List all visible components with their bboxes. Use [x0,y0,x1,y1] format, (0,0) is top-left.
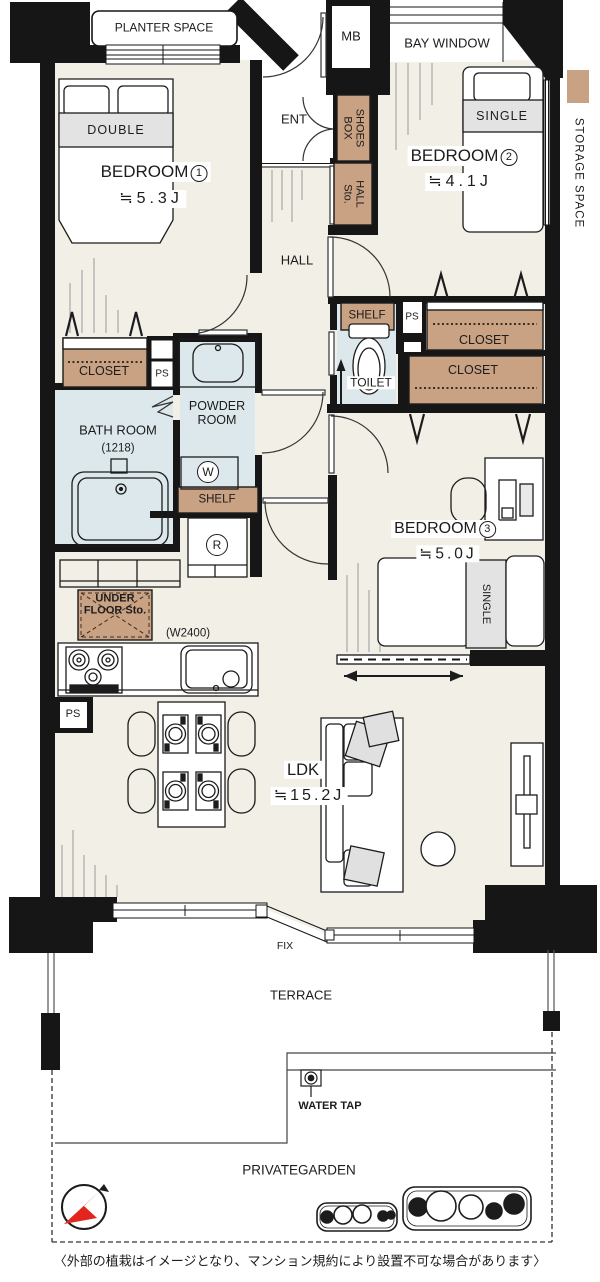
powder-door-leaf [262,390,325,395]
bathroom-name: BATH ROOM [79,424,157,439]
washer-symbol: W [197,461,219,483]
toilet-label: TOILET [347,376,395,389]
side-table [421,832,455,866]
bedroom3-closet-label: CLOSET [448,363,498,377]
bedroom2-closet-label: CLOSET [459,333,509,347]
shoes-box-label: SHOESBOX [341,109,366,148]
bedroom3-size: ≒5.0J [416,545,479,562]
meter-box-label: MB [341,30,361,45]
planter-space-label: PLANTER SPACE [115,21,213,34]
under-floor-label: UNDERFLOOR Sto. [84,593,146,618]
single-bed3-label: SINGLE [480,584,492,624]
terrace-label: TERRACE [270,989,332,1004]
ldk-name: LDK [284,761,322,779]
powder-room-label: POWDERROOM [189,399,245,427]
compass-icon [62,1184,109,1229]
bedroom1-name: BEDROOM1 [98,162,211,182]
bedroom3-name: BEDROOM3 [391,520,499,538]
water-tap-icon [301,1070,321,1097]
hall-storage-label: HALLSto. [341,180,366,208]
bedroom3-door-leaf [329,415,334,473]
toilet-ps-label: PS [405,311,418,322]
legend-swatch [567,70,589,103]
planter-2 [403,1187,531,1230]
toilet-tank [349,324,389,338]
storage-legend-label: STORAGE SPACE [572,118,585,228]
ldk-size: ≒15.2J [271,787,348,805]
powder-shelf-label: SHELF [198,494,235,507]
bay-window-label: BAY WINDOW [404,37,489,52]
single-bed-3 [378,558,470,646]
bedroom2-door-leaf [328,237,333,297]
toilet-shelf-label: SHELF [348,310,385,323]
double-bed-label: DOUBLE [87,123,144,137]
private-garden-label: PRIVATEGARDEN [242,1162,356,1177]
bedroom2-size: ≒4.1J [425,173,495,191]
bedroom1-ps-label: PS [155,368,168,379]
planter-1 [317,1203,397,1231]
hall-label: HALL [281,254,314,269]
bathroom-size: (1218) [101,443,134,456]
kitchen-width-label: (W2400) [166,628,210,641]
floor-plan: PLANTER SPACE MB BAY WINDOW STORAGE SPAC… [0,0,600,1282]
water-tap-label: WATER TAP [298,1100,361,1112]
entrance-label: ENT [281,113,307,128]
bedroom1-size: ≒5.3J [116,190,186,208]
disclaimer-caption: 〈外部の植栽はイメージとなり、マンション規約により設置不可な場合があります〉 [54,1255,547,1270]
single-bed2-label: SINGLE [476,109,528,123]
fix-window-label: FIX [277,941,293,953]
ldk-door-leaf [263,498,328,503]
bedroom2-name: BEDROOM2 [408,146,521,166]
kitchen-ps-label: PS [66,708,81,720]
floor-plan-drawing [0,0,600,1282]
bedroom1-closet-label: CLOSET [79,364,129,378]
toilet-door-leaf [329,332,334,375]
fridge-symbol: R [206,534,228,556]
entrance-door-leaf [321,13,326,77]
